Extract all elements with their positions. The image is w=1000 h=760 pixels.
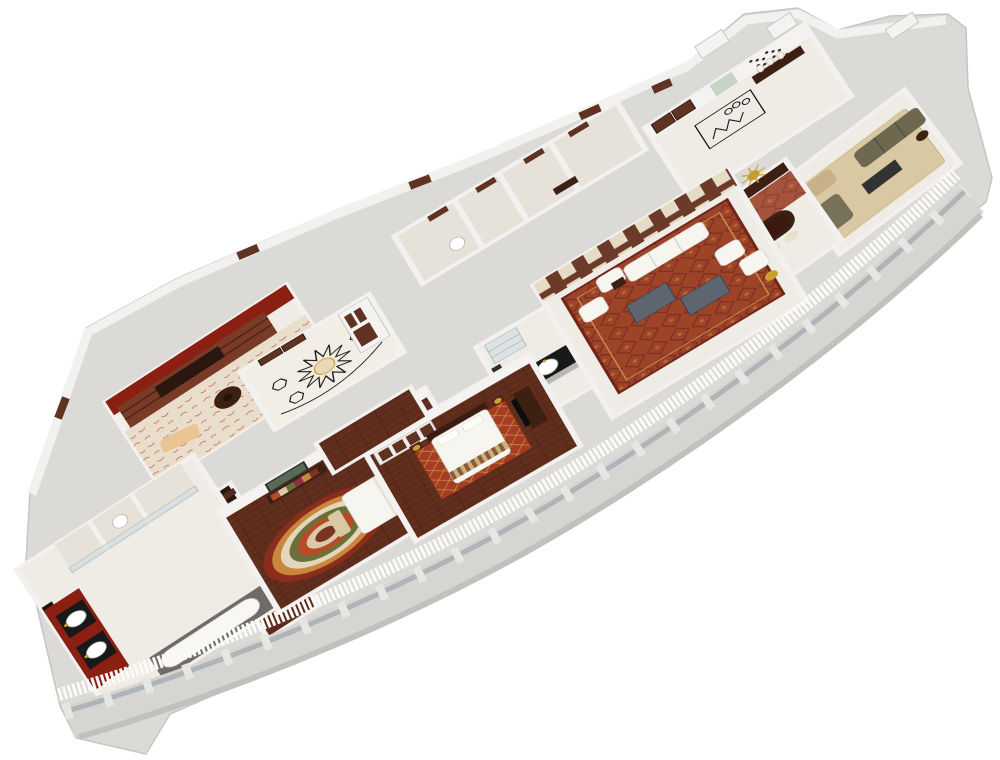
- floor-plan-stage: [0, 0, 1000, 760]
- floor-plan-canvas: [0, 0, 1000, 760]
